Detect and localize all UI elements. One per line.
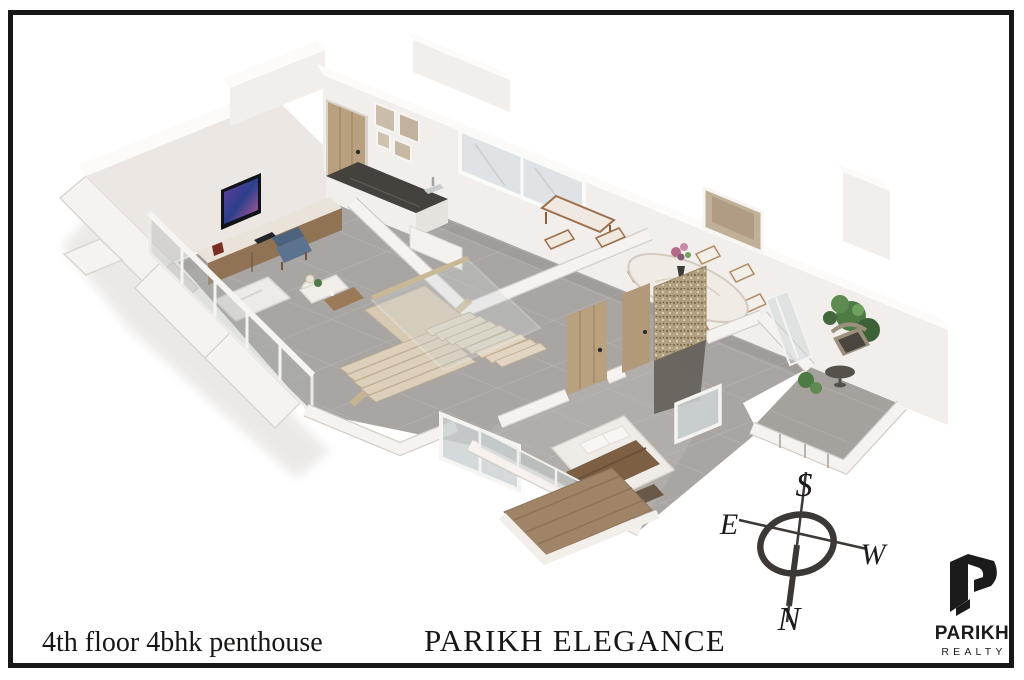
brand-logo: PARIKH REALTY <box>932 550 1012 658</box>
door-handle <box>356 150 360 154</box>
floor-plan-illustration: S E W N <box>0 0 1024 680</box>
compass-west-label: W <box>861 538 889 571</box>
compass-rose: S E W N <box>719 467 889 638</box>
bedroom-door <box>567 300 607 395</box>
compass-east-label: E <box>719 508 738 541</box>
floor-label: 4th floor 4bhk penthouse <box>42 627 323 659</box>
brand-p-mark-icon <box>936 550 1008 616</box>
brand-division: REALTY <box>932 646 1012 658</box>
project-title: PARIKH ELEGANCE <box>424 623 726 659</box>
table-plant <box>314 279 322 287</box>
compass-north-label: N <box>777 601 803 638</box>
bathroom-door <box>622 283 650 373</box>
compass-south-label: S <box>796 467 813 504</box>
brand-name: PARIKH <box>932 623 1012 645</box>
poster-canvas: S E W N 4th floor 4bhk penthouse PARIKH … <box>0 0 1024 680</box>
